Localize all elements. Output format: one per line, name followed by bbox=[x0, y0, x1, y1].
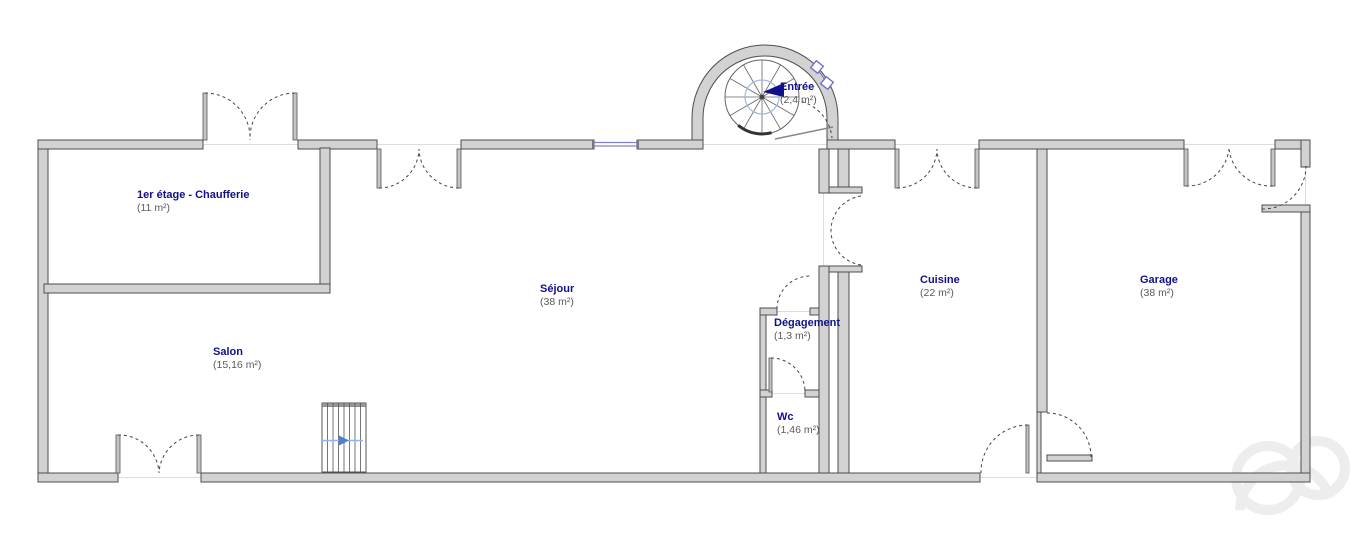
entrance-door-leaf bbox=[775, 127, 833, 139]
room-name: Wc bbox=[777, 411, 820, 423]
floor-plan: 1er étage - Chaufferie (11 m²) Séjour (3… bbox=[0, 0, 1351, 545]
room-name: Salon bbox=[213, 346, 261, 358]
room-label-wc: Wc (1,46 m²) bbox=[777, 411, 820, 436]
room-name: Entrée bbox=[780, 81, 817, 93]
room-area: (38 m²) bbox=[540, 296, 574, 308]
room-area: (1,3 m²) bbox=[774, 330, 840, 342]
room-name: Garage bbox=[1140, 274, 1178, 286]
door-swing-arcs bbox=[118, 93, 1306, 473]
room-area: (11 m²) bbox=[137, 202, 249, 214]
room-name: Cuisine bbox=[920, 274, 960, 286]
floor-plan-drawing bbox=[0, 0, 1351, 545]
door-leaves bbox=[116, 93, 1275, 473]
room-name: Séjour bbox=[540, 283, 574, 295]
room-area: (1,46 m²) bbox=[777, 424, 820, 436]
room-name: 1er étage - Chaufferie bbox=[137, 189, 249, 201]
room-name: Dégagement bbox=[774, 317, 840, 329]
room-label-chaufferie: 1er étage - Chaufferie (11 m²) bbox=[137, 189, 249, 214]
room-label-garage: Garage (38 m²) bbox=[1140, 274, 1178, 299]
room-area: (15,16 m²) bbox=[213, 359, 261, 371]
room-label-entree: Entrée (2,4 m²) bbox=[780, 81, 817, 106]
room-label-sejour: Séjour (38 m²) bbox=[540, 283, 574, 308]
room-label-degagement: Dégagement (1,3 m²) bbox=[774, 317, 840, 342]
room-area: (22 m²) bbox=[920, 287, 960, 299]
room-area: (38 m²) bbox=[1140, 287, 1178, 299]
room-area: (2,4 m²) bbox=[780, 94, 817, 106]
room-label-salon: Salon (15,16 m²) bbox=[213, 346, 261, 371]
staircase bbox=[322, 403, 366, 472]
window bbox=[592, 140, 639, 149]
opening-guides bbox=[118, 145, 1306, 478]
room-label-cuisine: Cuisine (22 m²) bbox=[920, 274, 960, 299]
